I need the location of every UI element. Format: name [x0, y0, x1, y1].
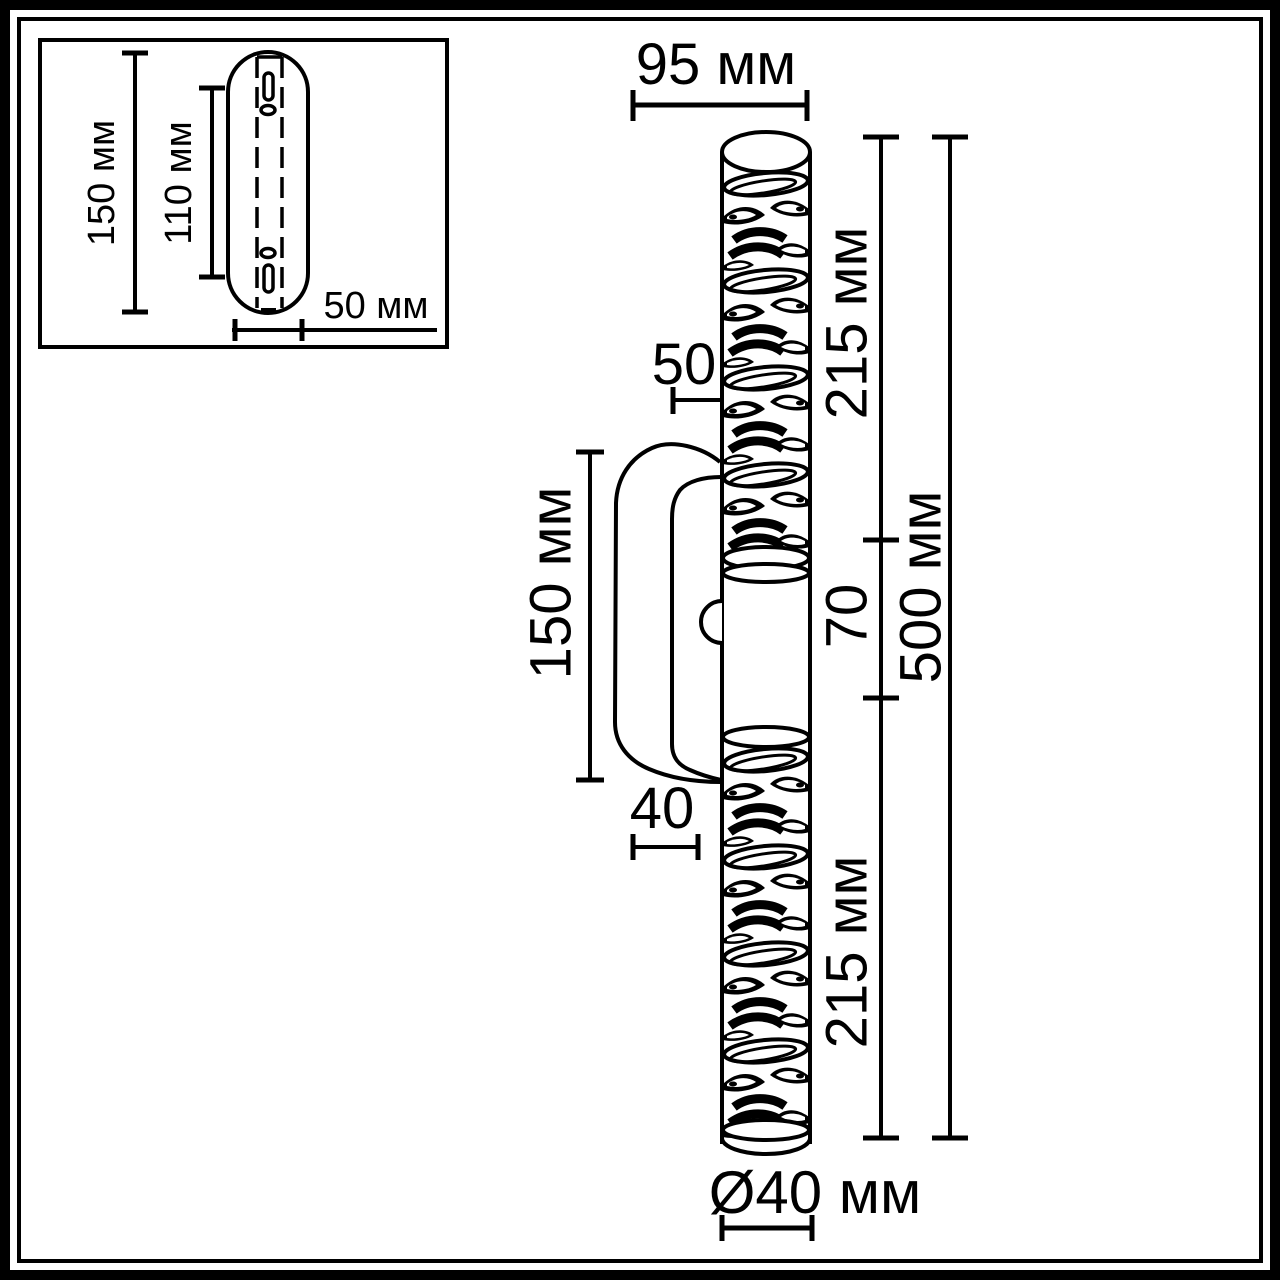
inset-height-label: 150 мм [81, 120, 123, 246]
technical-drawing: 150 мм 110 мм 50 мм [0, 0, 1280, 1280]
middle-section-label: 70 [815, 584, 880, 649]
section-dimension-line: 215 мм 70 215 мм [815, 137, 900, 1138]
bracket-height-label: 150 мм [519, 487, 584, 680]
inset-slot-span-dimension: 110 мм [158, 88, 225, 277]
diameter-label: Ø40 мм [709, 1159, 922, 1226]
plate-top-slot [264, 73, 273, 100]
plate-bottom-slot [264, 265, 273, 292]
tube-top-cap [722, 132, 810, 172]
lamp-tube [701, 132, 810, 1154]
plate-bottom-hole [261, 249, 275, 258]
plate-top-hole [261, 106, 275, 115]
top-width-label: 95 мм [636, 32, 796, 97]
inset-width-label: 50 мм [323, 285, 428, 327]
lower-section-label: 215 мм [815, 856, 880, 1049]
upper-section-label: 215 мм [815, 227, 880, 420]
inset-height-dimension: 150 мм [81, 53, 148, 312]
main-view: 95 мм 50 150 мм 40 215 мм 70 215 мм [519, 32, 969, 1241]
wall-offset-label: 50 [652, 332, 717, 397]
drawing-svg: 150 мм 110 мм 50 мм [0, 0, 1280, 1280]
total-height-label: 500 мм [889, 491, 954, 684]
top-width-dimension: 95 мм [633, 32, 807, 121]
bracket-depth-dimension: 40 [630, 776, 698, 860]
bracket-depth-label: 40 [630, 776, 695, 841]
inset-panel: 150 мм 110 мм 50 мм [40, 40, 447, 347]
mounting-plate [228, 52, 308, 313]
wall-offset-dimension: 50 [652, 332, 722, 414]
bracket-height-dimension: 150 мм [519, 452, 605, 780]
diameter-dimension: Ø40 мм [709, 1159, 922, 1241]
inset-slot-span-label: 110 мм [158, 121, 200, 244]
total-height-dimension: 500 мм [889, 137, 969, 1138]
